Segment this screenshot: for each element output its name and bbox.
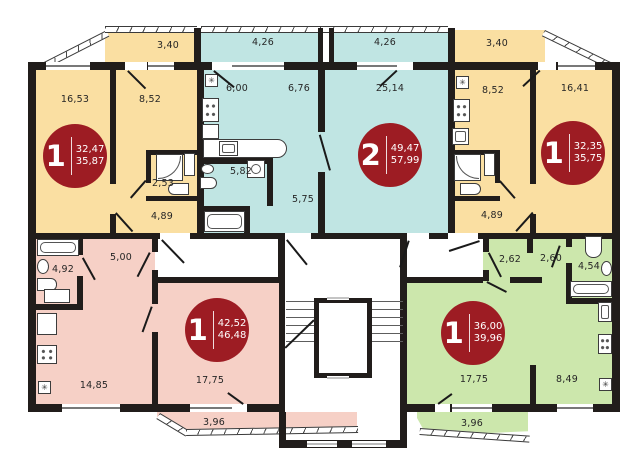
corridor-right xyxy=(406,239,483,277)
room-label: 6,00 xyxy=(209,83,265,94)
badge-divider xyxy=(386,136,387,174)
door-opening xyxy=(435,404,450,412)
toilet-icon xyxy=(460,183,481,195)
wall xyxy=(530,365,536,404)
wall xyxy=(110,214,116,233)
room-label: 14,85 xyxy=(66,380,122,391)
unit-badge: 1 32,35 35,75 xyxy=(541,121,605,185)
unit-badge: 1 36,00 39,96 xyxy=(441,301,505,365)
unit-living-area: 42,52 xyxy=(218,318,247,330)
room-label: 8,49 xyxy=(539,374,595,385)
room-label: 4,92 xyxy=(35,264,91,275)
bathtub-icon xyxy=(204,211,245,232)
room-label: 4,54 xyxy=(561,261,617,272)
wall-entry-bottom xyxy=(279,440,407,448)
unit-total-area: 35,75 xyxy=(574,153,603,165)
room-label: 17,75 xyxy=(182,375,238,386)
room-label: 8,52 xyxy=(122,94,178,105)
stove-icon xyxy=(598,334,612,354)
window xyxy=(307,441,337,447)
window xyxy=(357,62,397,70)
unit-rooms-count: 1 xyxy=(444,319,464,348)
wall xyxy=(407,277,483,283)
kitchen-sink-icon xyxy=(452,128,469,145)
window xyxy=(190,404,232,412)
wall xyxy=(566,239,572,247)
bathroom-cabinet xyxy=(184,153,195,176)
wall xyxy=(278,239,285,277)
room-label: 4,89 xyxy=(464,210,520,221)
wall xyxy=(152,270,158,304)
kitchen-counter xyxy=(203,139,287,158)
washing-machine-icon xyxy=(44,289,70,303)
vent-icon: ✳ xyxy=(38,381,51,394)
kitchen-sink-icon xyxy=(598,302,612,322)
badge-divider xyxy=(213,311,214,349)
door-opening xyxy=(125,62,147,70)
room-label: 5,00 xyxy=(93,252,149,263)
toilet-icon xyxy=(585,236,602,258)
bathtub-icon xyxy=(570,281,612,297)
unit-rooms-count: 2 xyxy=(361,141,381,170)
unit-living-area: 36,00 xyxy=(474,321,503,333)
door-opening xyxy=(407,233,429,239)
room-label: 4,89 xyxy=(134,211,190,222)
corridor-left xyxy=(155,239,279,277)
wall xyxy=(318,70,325,132)
badge-divider xyxy=(469,314,470,352)
wall xyxy=(450,196,500,201)
wall xyxy=(146,196,197,201)
wall xyxy=(530,70,536,184)
unit-living-area: 49,47 xyxy=(391,143,420,155)
window xyxy=(558,62,595,70)
wall xyxy=(530,214,536,233)
unit-badge: 2 49,47 57,99 xyxy=(358,123,422,187)
wall xyxy=(110,70,116,184)
wall-entry-right xyxy=(400,412,407,442)
room-label: 5,75 xyxy=(275,194,331,205)
toilet-icon xyxy=(200,177,217,189)
kitchen-sink-icon xyxy=(219,141,238,156)
wall xyxy=(448,28,455,62)
wall xyxy=(527,239,533,253)
shower-icon xyxy=(454,154,481,181)
room-label: 25,14 xyxy=(362,83,418,94)
room-label: 8,52 xyxy=(465,85,521,96)
room-label: 17,75 xyxy=(446,374,502,385)
stove-icon xyxy=(37,345,57,364)
unit-rooms-count: 1 xyxy=(188,316,208,345)
door-opening xyxy=(538,62,556,70)
room-label: 16,41 xyxy=(547,83,603,94)
wall xyxy=(510,277,542,283)
unit-total-area: 35,87 xyxy=(76,156,105,168)
room-label: 3,96 xyxy=(186,417,242,428)
window xyxy=(46,62,90,70)
window xyxy=(62,404,120,412)
bathroom-cabinet xyxy=(484,153,495,176)
vent-icon: ✳ xyxy=(599,378,612,391)
wall xyxy=(483,239,489,252)
elevator-shaft xyxy=(314,298,372,378)
wall xyxy=(329,28,334,62)
window xyxy=(452,404,492,412)
unit-total-area: 46,48 xyxy=(218,330,247,342)
unit-total-area: 39,96 xyxy=(474,333,503,345)
door-swing xyxy=(286,239,307,265)
wall xyxy=(152,332,158,404)
glazing-top-left xyxy=(105,26,197,33)
badge-divider xyxy=(71,137,72,175)
bathtub-icon xyxy=(37,239,79,256)
kitchen-cabinet xyxy=(202,124,219,139)
room-label: 2,53 xyxy=(135,178,191,189)
floor-plan: ✳ ✳ ✳ ✳ 16,53 8,52 2,53 xyxy=(0,0,644,470)
room-label: 3,40 xyxy=(469,38,525,49)
unit-badge: 1 32,47 35,87 xyxy=(43,124,107,188)
door-opening xyxy=(285,233,311,239)
shower-icon xyxy=(156,154,183,181)
unit-total-area: 57,99 xyxy=(391,155,420,167)
elevator-door xyxy=(327,376,349,380)
room-label: 3,96 xyxy=(444,418,500,429)
unit-badge: 1 42,52 46,48 xyxy=(185,298,249,362)
fridge-icon xyxy=(37,313,57,335)
wall xyxy=(152,239,158,252)
room-label: 16,53 xyxy=(47,94,103,105)
wall xyxy=(318,28,323,62)
room-label: 4,26 xyxy=(235,37,291,48)
wall xyxy=(495,150,500,183)
unit-living-area: 32,47 xyxy=(76,144,105,156)
wall-top xyxy=(28,62,620,70)
door-opening xyxy=(448,233,478,239)
room-label: 6,76 xyxy=(271,83,327,94)
room-label: 3,40 xyxy=(140,40,196,51)
unit-rooms-count: 1 xyxy=(46,142,66,171)
wall xyxy=(36,304,83,310)
elevator-door xyxy=(327,296,349,300)
wall xyxy=(279,277,285,412)
window xyxy=(352,441,386,447)
door-opening xyxy=(212,62,232,70)
window xyxy=(232,62,284,70)
door-opening xyxy=(232,404,247,412)
wall-entry-left xyxy=(279,412,286,442)
door-opening xyxy=(397,62,413,70)
window xyxy=(148,62,174,70)
glazing-top-center xyxy=(201,26,448,33)
room-label: 5,82 xyxy=(213,166,269,177)
wall xyxy=(483,270,489,281)
room-label: 4,26 xyxy=(357,37,413,48)
stairs-right xyxy=(372,301,403,347)
stove-icon xyxy=(202,98,219,122)
window xyxy=(557,404,593,412)
wall xyxy=(152,277,279,283)
unit-rooms-count: 1 xyxy=(544,139,564,168)
unit-living-area: 32,35 xyxy=(574,141,603,153)
door-opening xyxy=(160,233,190,239)
badge-divider xyxy=(569,134,570,172)
stove-icon xyxy=(453,99,470,122)
